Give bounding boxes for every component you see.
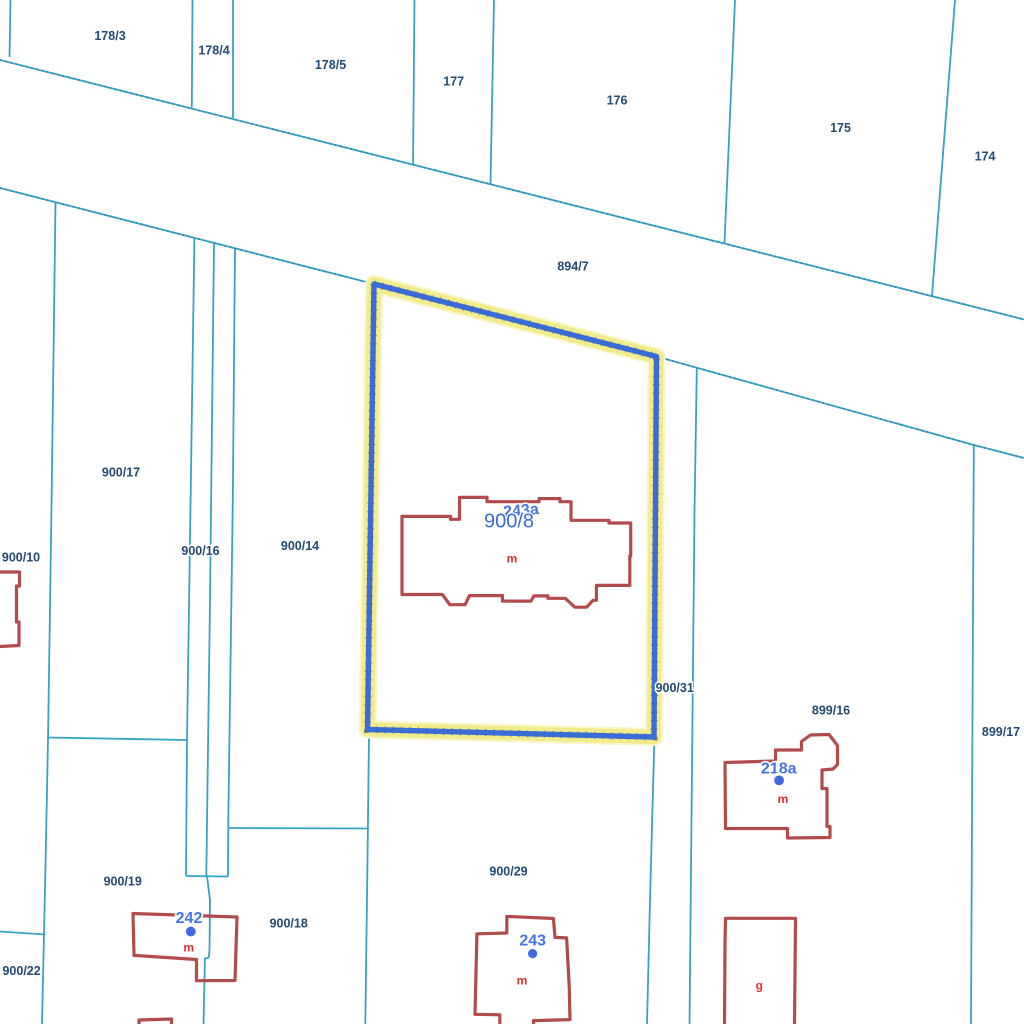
svg-text:176: 176 bbox=[607, 94, 628, 108]
svg-text:178/4: 178/4 bbox=[198, 44, 229, 58]
svg-text:m: m bbox=[507, 552, 518, 566]
svg-text:174: 174 bbox=[975, 150, 996, 164]
svg-text:899/17: 899/17 bbox=[982, 725, 1020, 739]
svg-text:900/8: 900/8 bbox=[484, 511, 534, 533]
svg-text:900/17: 900/17 bbox=[102, 466, 140, 480]
svg-text:900/31: 900/31 bbox=[656, 681, 694, 695]
svg-text:900/10: 900/10 bbox=[2, 551, 40, 565]
svg-text:175: 175 bbox=[830, 121, 851, 135]
svg-text:m: m bbox=[517, 974, 528, 988]
svg-text:900/22: 900/22 bbox=[2, 964, 40, 978]
svg-text:900/14: 900/14 bbox=[281, 539, 319, 553]
svg-text:178/3: 178/3 bbox=[94, 29, 125, 43]
svg-text:900/16: 900/16 bbox=[181, 544, 219, 558]
svg-text:m: m bbox=[778, 792, 789, 806]
svg-text:m: m bbox=[183, 941, 194, 955]
svg-text:900/18: 900/18 bbox=[270, 917, 308, 931]
svg-text:178/5: 178/5 bbox=[315, 58, 346, 72]
svg-text:900/19: 900/19 bbox=[104, 874, 142, 888]
svg-text:177: 177 bbox=[443, 75, 464, 89]
svg-text:899/16: 899/16 bbox=[812, 704, 850, 718]
svg-text:894/7: 894/7 bbox=[557, 260, 588, 274]
svg-text:900/29: 900/29 bbox=[489, 865, 527, 879]
svg-text:g: g bbox=[756, 979, 763, 993]
